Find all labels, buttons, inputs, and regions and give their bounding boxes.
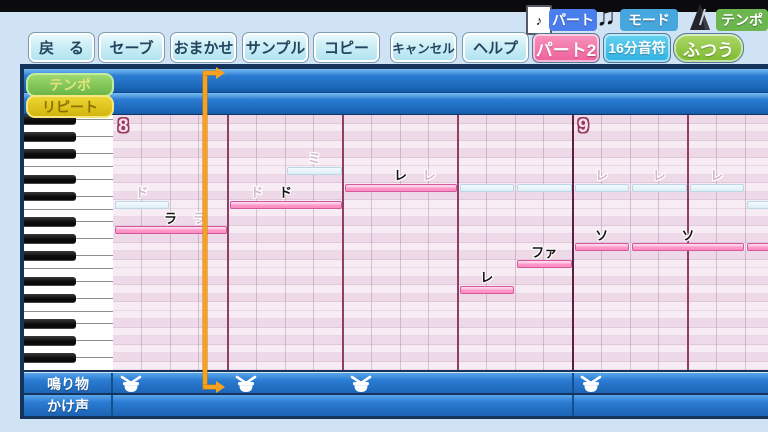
ghost-note-bar — [287, 167, 342, 175]
grid-line — [486, 115, 487, 370]
piano-black-key — [24, 294, 76, 304]
note-bar[interactable] — [345, 184, 457, 192]
grid-row — [113, 200, 768, 209]
grid-line — [198, 115, 199, 370]
grid-row — [113, 209, 768, 218]
grid-line — [630, 115, 631, 370]
instrument-track-label: 鳴り物 — [24, 373, 112, 394]
drum-icon[interactable] — [234, 375, 258, 393]
grid-line — [371, 115, 372, 370]
music-note-icon: ♫ — [596, 0, 616, 32]
ghost-note-label: レ — [595, 169, 608, 183]
track-measure-divider — [572, 373, 574, 394]
ghost-note-bar — [115, 201, 170, 209]
grid-row — [113, 192, 768, 201]
note-label: ド — [279, 186, 292, 200]
piano-black-key — [24, 251, 76, 261]
grid-row — [113, 251, 768, 260]
grid-row — [113, 141, 768, 150]
toolbar-button-6[interactable]: キャンセル — [390, 32, 457, 63]
timeline-header-upper — [24, 69, 768, 92]
drum-icon[interactable] — [119, 375, 143, 393]
piano-key-separator — [76, 153, 113, 154]
grid-row — [113, 302, 768, 311]
grid-row — [113, 132, 768, 141]
note-label: ラ — [164, 212, 177, 226]
ghost-note-label: レ — [653, 169, 666, 183]
piano-black-key — [24, 234, 76, 244]
grid-row — [113, 345, 768, 354]
grid-row — [113, 234, 768, 243]
grid-row — [113, 294, 768, 303]
note-bar[interactable] — [517, 260, 572, 268]
grid-row — [113, 328, 768, 337]
grid-line — [457, 115, 459, 370]
ghost-note-label: レ — [710, 169, 723, 183]
grid-line — [342, 115, 344, 370]
piano-key-separator — [76, 340, 113, 341]
grid-line — [428, 115, 429, 370]
drum-icon[interactable] — [579, 375, 603, 393]
timeline-header-lower — [24, 93, 768, 115]
toolbar-button-4[interactable]: サンプル — [242, 32, 309, 63]
piano-key-separator — [76, 179, 113, 180]
ghost-note-bar — [517, 184, 572, 192]
grid-line — [285, 115, 286, 370]
measure-number: 9 — [578, 117, 589, 137]
ghost-note-label: レ — [423, 169, 436, 183]
piano-key-separator — [76, 357, 113, 358]
indicator-mode-label: モード — [620, 9, 678, 31]
status-chip-2[interactable]: 16分音符 — [603, 33, 671, 63]
grid-row — [113, 217, 768, 226]
grid-row — [113, 268, 768, 277]
track-separator — [24, 393, 768, 395]
piano-roll-grid[interactable]: ドラドミレレレレラドレレファソソ89 — [113, 115, 768, 370]
grid-row — [113, 175, 768, 184]
note-label: レ — [480, 271, 493, 285]
grid-line — [745, 115, 746, 370]
playhead-top-arm — [203, 71, 216, 75]
toolbar-button-2[interactable]: セーブ — [98, 32, 165, 63]
grid-row — [113, 149, 768, 158]
grid-row — [113, 311, 768, 320]
cheer-song-editor: { "topbar": { "indicators": [ {"icon": "… — [0, 0, 768, 432]
ghost-note-bar — [747, 201, 768, 209]
piano-black-key — [24, 217, 76, 227]
piano-black-key — [24, 192, 76, 202]
grid-line — [256, 115, 257, 370]
note-label: ソ — [681, 229, 694, 243]
grid-line — [400, 115, 401, 370]
indicator-part-label: パート — [549, 9, 597, 31]
piano-key-separator — [76, 323, 113, 324]
track-label-separator — [111, 395, 113, 416]
ghost-note-bar — [575, 184, 630, 192]
grid-row — [113, 166, 768, 175]
piano-black-key — [24, 319, 76, 329]
toolbar-button-5[interactable]: コピー — [313, 32, 380, 63]
grid-row — [113, 353, 768, 362]
grid-line — [515, 115, 516, 370]
piano-key-separator — [76, 119, 113, 120]
note-bar[interactable] — [632, 243, 744, 251]
note-bar[interactable] — [460, 286, 515, 294]
grid-line — [141, 115, 142, 370]
grid-row — [113, 319, 768, 328]
piano-key-separator — [24, 166, 113, 167]
drum-icon[interactable] — [349, 375, 373, 393]
track-measure-divider — [572, 395, 574, 416]
piano-key-separator — [24, 268, 113, 269]
piano-key-separator — [76, 281, 113, 282]
piano-black-key — [24, 353, 76, 363]
track-separator — [24, 370, 768, 372]
piano-black-key — [24, 149, 76, 159]
ghost-note-bar — [632, 184, 687, 192]
grid-row — [113, 158, 768, 167]
piano-black-key — [24, 175, 76, 185]
grid-line — [170, 115, 171, 370]
grid-line — [227, 115, 229, 370]
repeat-button[interactable]: リピート — [26, 95, 114, 118]
piano-key-separator — [24, 209, 113, 210]
grid-row — [113, 277, 768, 286]
piano-black-key — [24, 132, 76, 142]
grid-row — [113, 285, 768, 294]
ghost-note-bar — [690, 184, 745, 192]
grid-row — [113, 115, 768, 124]
status-chip-1[interactable]: パート2 — [532, 33, 600, 63]
toolbar-button-1[interactable]: 戻 る — [28, 32, 95, 63]
grid-line — [543, 115, 544, 370]
piano-key-separator — [76, 298, 113, 299]
grid-row — [113, 336, 768, 345]
piano-key-separator — [76, 221, 113, 222]
note-bar[interactable] — [747, 243, 768, 251]
piano-key-separator — [24, 311, 113, 312]
piano-key-separator — [76, 255, 113, 256]
ghost-note-label: ド — [135, 186, 148, 200]
piano-black-key — [24, 336, 76, 346]
note-bar[interactable] — [230, 201, 342, 209]
status-chip-3[interactable]: ふつう — [673, 33, 744, 63]
playhead-bottom-arm — [203, 385, 216, 389]
ghost-note-label: ミ — [308, 152, 321, 166]
playhead-top-arrowhead — [216, 67, 225, 79]
note-bar[interactable] — [575, 243, 630, 251]
piano-key-separator — [76, 196, 113, 197]
track-label-separator — [111, 373, 113, 394]
note-label: レ — [394, 169, 407, 183]
note-bar[interactable] — [115, 226, 227, 234]
grid-row — [113, 362, 768, 371]
metronome-icon — [686, 3, 714, 31]
grid-row — [113, 260, 768, 269]
piano-keyboard[interactable] — [24, 115, 113, 371]
ghost-note-label: ド — [250, 186, 263, 200]
piano-key-separator — [76, 136, 113, 137]
panel-left-border — [20, 64, 24, 419]
indicator-tempo-label: テンポ — [716, 9, 768, 31]
toolbar-button-3[interactable]: おまかせ — [170, 32, 237, 63]
note-label: ファ — [531, 246, 557, 260]
track-row-2[interactable] — [24, 395, 768, 416]
tempo-button[interactable]: テンポ — [26, 73, 114, 97]
grid-row — [113, 124, 768, 133]
piano-key-separator — [76, 238, 113, 239]
playhead-line[interactable] — [203, 71, 207, 389]
toolbar-button-7[interactable]: ヘルプ — [462, 32, 529, 63]
measure-number: 8 — [118, 117, 129, 137]
piano-black-key — [24, 277, 76, 287]
note-label: ソ — [595, 229, 608, 243]
ghost-note-bar — [460, 184, 515, 192]
playhead-bottom-arrowhead — [216, 381, 225, 393]
chant-track-label: かけ声 — [24, 395, 112, 416]
grid-line — [572, 115, 574, 370]
